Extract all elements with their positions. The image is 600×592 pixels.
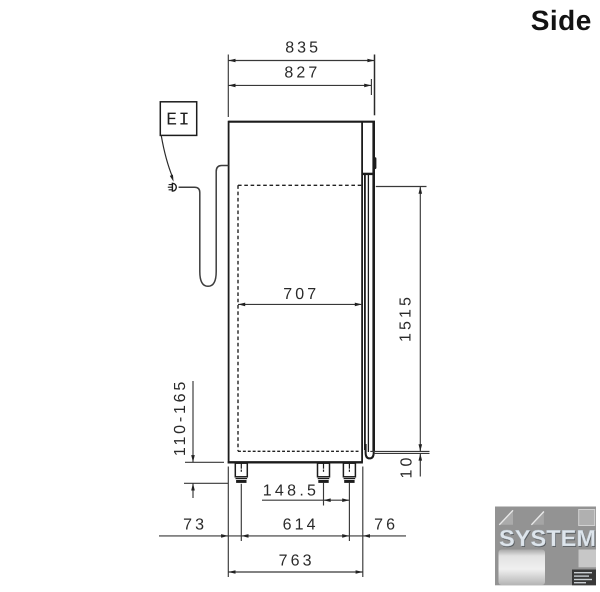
svg-text:763: 763 (279, 553, 315, 570)
svg-text:148.5: 148.5 (263, 483, 320, 500)
svg-text:Side: Side (531, 5, 592, 36)
svg-text:10: 10 (399, 455, 416, 479)
svg-text:SYSTEM: SYSTEM (499, 525, 596, 551)
svg-text:1515: 1515 (398, 294, 415, 342)
svg-text:EI: EI (166, 110, 191, 130)
svg-text:707: 707 (283, 286, 319, 303)
svg-text:827: 827 (284, 65, 320, 82)
svg-text:76: 76 (374, 517, 398, 534)
svg-text:835: 835 (285, 40, 321, 57)
svg-text:614: 614 (283, 517, 319, 534)
svg-text:73: 73 (183, 517, 207, 534)
svg-text:110-165: 110-165 (172, 379, 189, 456)
